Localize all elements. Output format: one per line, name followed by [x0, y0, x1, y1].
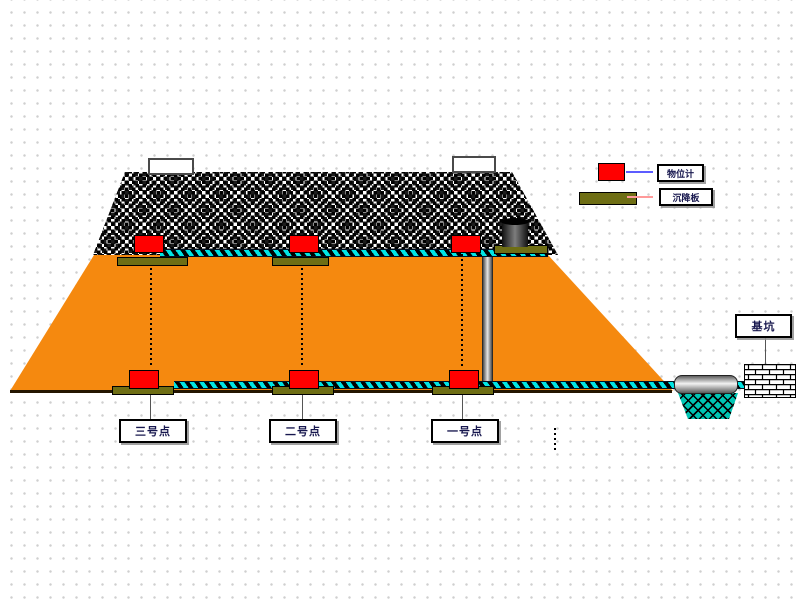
legend-settlement-plate-swatch: [579, 192, 637, 205]
legend-level-gauge-swatch: [598, 163, 625, 181]
embankment-base-line: [10, 390, 672, 393]
upper-settlement-plate-point3: [117, 257, 188, 266]
plumb-line-point3: [150, 268, 152, 368]
point1-label: 一号点: [447, 423, 483, 439]
plumb-line-point2: [301, 268, 303, 368]
lower-level-gauge-point1: [449, 370, 479, 389]
label-connector-point3: [150, 395, 151, 419]
upper-level-gauge-point3: [134, 235, 164, 253]
point3-label-box[interactable]: 三号点: [119, 419, 187, 443]
legend-settlement-plate-line: [627, 196, 653, 198]
legend-settlement-plate-label: 沉降板: [672, 191, 699, 204]
point3-label: 三号点: [135, 423, 171, 439]
legend-level-gauge-label-box: 物位计: [657, 164, 704, 182]
upper-level-gauge-point2: [289, 235, 319, 253]
gauge-house-brick-wall: [744, 364, 796, 398]
point1-label-box[interactable]: 一号点: [431, 419, 499, 443]
label-connector-point1: [462, 395, 463, 419]
legend-settlement-plate-label-box: 沉降板: [659, 188, 713, 206]
survey-monument-left: [148, 158, 194, 175]
upper-settlement-plate-point2: [272, 257, 329, 266]
survey-monument-right: [452, 156, 496, 173]
pit-label-box: 基坑: [735, 314, 792, 338]
legend-level-gauge-line: [626, 171, 653, 173]
embankment-fill-body: [8, 255, 676, 392]
collection-tank-cylinder: [674, 375, 738, 394]
pit-label: 基坑: [752, 318, 776, 334]
point2-label: 二号点: [285, 423, 321, 439]
water-sump-pit: [676, 393, 740, 419]
upper-hydraulic-tube: [160, 249, 548, 257]
point2-label-box[interactable]: 二号点: [269, 419, 337, 443]
ellipsis-marker: [554, 428, 556, 450]
lower-level-gauge-point2: [289, 370, 319, 389]
pit-label-connector: [765, 338, 766, 364]
riser-pipe: [482, 253, 493, 386]
plumb-line-point1: [461, 254, 463, 368]
standpipe-cap-top: [501, 218, 529, 225]
upper-level-gauge-point1: [451, 235, 481, 253]
label-connector-point2: [302, 395, 303, 419]
lower-level-gauge-point3: [129, 370, 159, 389]
legend-level-gauge-label: 物位计: [667, 167, 694, 180]
